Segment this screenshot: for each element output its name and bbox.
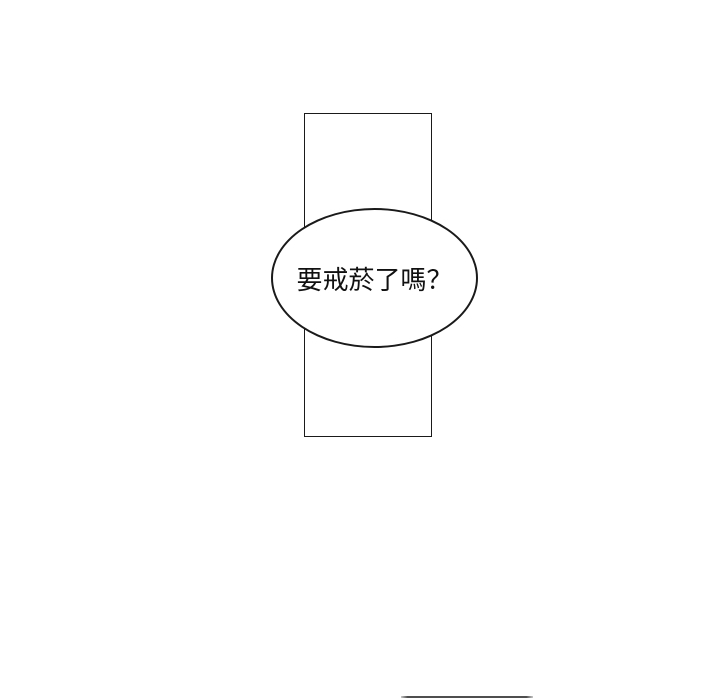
speech-bubble: 要戒菸了嗎？	[271, 208, 478, 348]
speech-bubble-text: 要戒菸了嗎？	[296, 262, 452, 294]
comic-page: 要戒菸了嗎？	[0, 0, 720, 700]
next-panel-top-edge-line	[401, 696, 533, 698]
